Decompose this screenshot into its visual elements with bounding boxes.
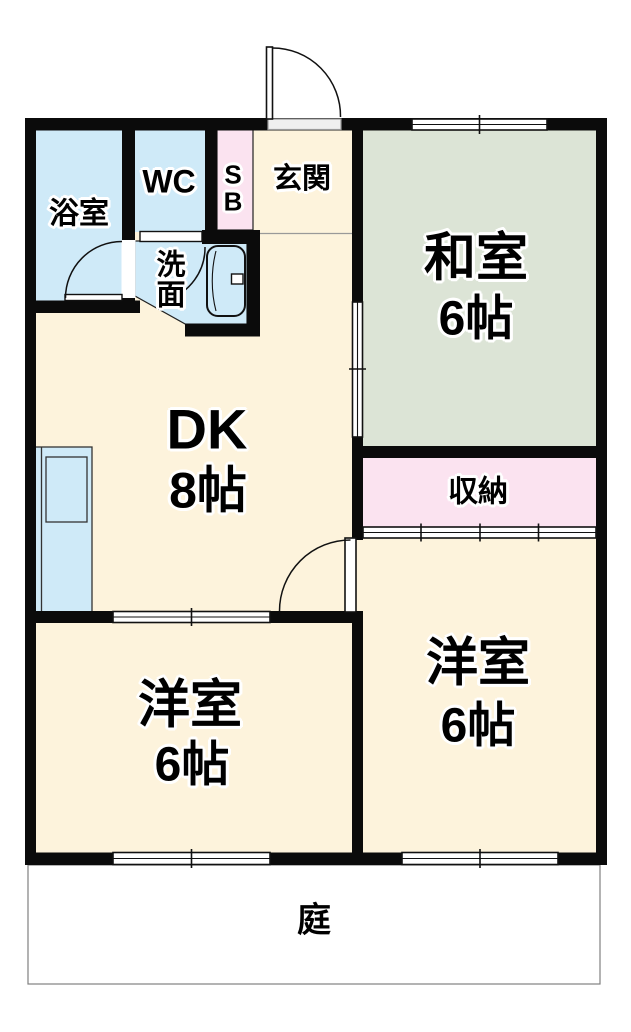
wall-japanese-bottom — [352, 446, 607, 458]
window-western-right-bottom — [402, 849, 558, 868]
bath-door-leaf — [65, 295, 122, 301]
wall-washroom-bottom — [185, 324, 260, 337]
wall-washroom-right — [247, 230, 260, 336]
wall-outer-right — [596, 118, 607, 865]
entrance-door-arc — [273, 48, 341, 117]
western-left-name: 洋室 — [138, 679, 242, 732]
floor-plan-drawing — [0, 0, 631, 1032]
wc-label: WC — [142, 166, 195, 199]
western-left-size: 6帖 — [155, 742, 230, 791]
wc-door — [140, 232, 202, 242]
bathtub-handle — [232, 274, 244, 284]
washroom-label-line1: 洗 — [156, 251, 185, 281]
garden-label: 庭 — [297, 904, 331, 939]
window-western-left-bottom — [113, 849, 270, 868]
shoe-box-label-line1: S — [224, 161, 243, 188]
wall-bath-bottom — [25, 301, 140, 314]
shoe-box-label: S B — [224, 161, 243, 214]
japanese-room-name: 和室 — [424, 232, 528, 285]
shoe-box-label-line2: B — [224, 188, 243, 215]
floor-plan: 浴室 WC S B 玄関 洗 面 和室 6帖 DK 8帖 収納 洋室 6帖 洋室… — [0, 0, 631, 1032]
wall-wc-shoebox — [205, 118, 217, 243]
dk-western-door-leaf — [345, 538, 356, 612]
kitchen-counter — [33, 447, 92, 612]
window-dk-bottom — [113, 608, 270, 626]
entrance-threshold — [268, 119, 341, 130]
wall-between-western-rooms — [352, 611, 363, 865]
washroom-label: 洗 面 — [156, 251, 185, 310]
closet-label: 収納 — [448, 478, 508, 509]
western-right-size: 6帖 — [441, 703, 516, 752]
bath-label: 浴室 — [49, 200, 109, 231]
japanese-room-size: 6帖 — [439, 296, 514, 345]
bathtub — [207, 246, 245, 316]
dk-size: 8帖 — [169, 466, 247, 517]
entrance-door — [267, 47, 342, 130]
western-right-name: 洋室 — [426, 637, 530, 690]
closet-sliding-door — [363, 524, 596, 542]
wall-closet-left — [352, 446, 363, 540]
entrance-label: 玄関 — [273, 165, 331, 195]
washroom-label-line2: 面 — [156, 281, 185, 311]
dk-name: DK — [167, 400, 248, 457]
entrance-door-leaf — [267, 47, 273, 119]
wall-outer-left — [25, 118, 36, 865]
japanese-room-floor — [363, 129, 596, 446]
